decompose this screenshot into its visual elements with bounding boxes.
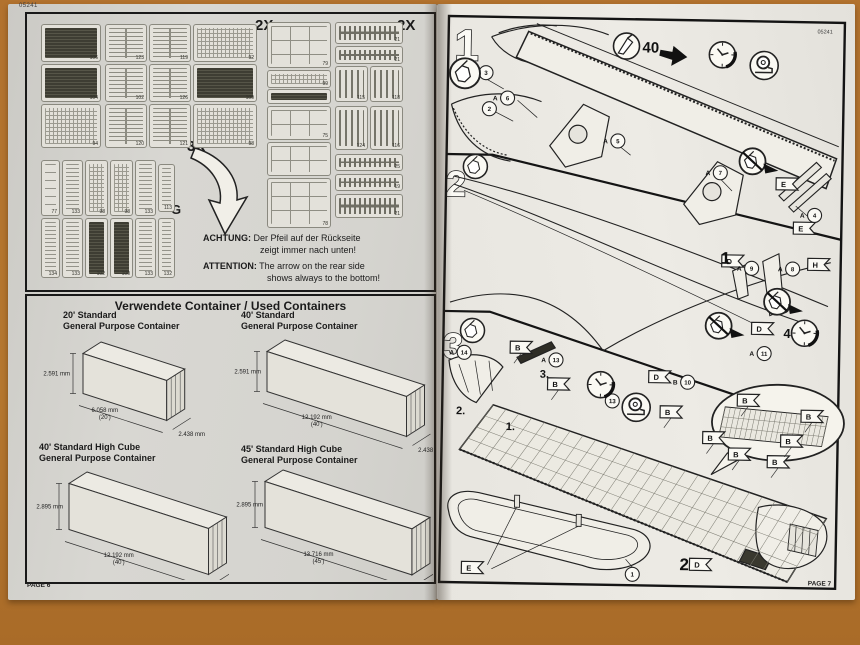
sprue-panel-pattern xyxy=(162,168,171,208)
sprue-panel: 75 xyxy=(267,106,331,140)
part-callout: A13 xyxy=(541,353,563,367)
svg-text:A: A xyxy=(493,95,498,102)
svg-text:B: B xyxy=(733,450,739,459)
sprue-panel-pattern xyxy=(153,68,187,98)
attention-label: ATTENTION: xyxy=(203,261,257,271)
sprue-panel: 126 xyxy=(149,64,191,102)
sprue-panel-pattern xyxy=(45,28,97,58)
container-name-line1: 40' Standard xyxy=(241,310,358,321)
svg-text:A: A xyxy=(800,213,805,220)
part-number: 98 xyxy=(99,210,105,215)
assembly-number-label: 1 xyxy=(721,249,731,268)
svg-text:B: B xyxy=(742,396,748,405)
sprue-panel: 118 xyxy=(370,66,403,102)
sprue-letter-flag: B xyxy=(547,378,569,400)
direction-arrow xyxy=(659,46,687,66)
assembly-steps-drawing: 05241 PAGE 7 1 2 3 40 xyxy=(437,4,855,600)
part-number: 109 xyxy=(246,96,254,101)
sprue-panel-pattern xyxy=(271,26,327,64)
sprue-panel-pattern xyxy=(197,28,253,58)
height-dim-label: 2.591 mm xyxy=(234,370,261,376)
length-dim-label: 13.716 mm xyxy=(303,552,333,558)
sprue-panel-pattern xyxy=(139,164,152,212)
sprue-panel-pattern xyxy=(45,164,56,212)
down-arrow-shape xyxy=(191,148,247,234)
container-diagram-40std: 2.591 mm12.192 mm(40')2.438 mm xyxy=(229,328,433,458)
no-glue-icon xyxy=(764,289,803,316)
svg-text:B: B xyxy=(707,434,713,443)
sprue-panel: 133 xyxy=(135,160,156,216)
sprue-panel-pattern xyxy=(197,68,253,98)
svg-text:B: B xyxy=(552,380,558,389)
svg-text:A: A xyxy=(706,170,711,177)
sprue-panel: 133 xyxy=(62,160,83,216)
sprue-panel: 119 xyxy=(149,24,191,62)
sprue-panel: 99 xyxy=(267,70,331,88)
sprue-panel-pattern xyxy=(45,222,56,274)
sprue-panel: 98 xyxy=(110,160,133,216)
container-name-line1: 20' Standard xyxy=(63,310,180,321)
sprue-panel: 79 xyxy=(267,22,331,68)
sprue-panel-pattern xyxy=(66,222,79,274)
width-dim-line xyxy=(173,418,191,430)
sprue-panel-pattern xyxy=(271,93,327,100)
sprue-panel-pattern xyxy=(109,68,143,98)
svg-text:B: B xyxy=(665,408,671,417)
sprue-letter-flag: B xyxy=(702,431,724,453)
sprue-panel-pattern xyxy=(66,164,79,212)
sprue-panel: 133 xyxy=(62,218,83,278)
sprue-panel: 25 xyxy=(335,154,403,171)
sprue-panel-pattern xyxy=(114,222,129,274)
svg-text:E: E xyxy=(781,180,786,189)
length-feet-label: (40') xyxy=(311,422,323,428)
stand-peg xyxy=(514,495,519,507)
flag-leader-line xyxy=(771,468,778,478)
sprue-panel-pattern xyxy=(339,70,364,98)
achtung-text: Der Pfeil auf der Rückseite xyxy=(254,233,361,243)
lower-bow-serration xyxy=(453,108,508,155)
circled-number-callout: 2 xyxy=(482,102,496,116)
hull-bottom-curve xyxy=(452,184,816,326)
sprue-panel-pattern xyxy=(153,28,187,58)
part-callout: A5 xyxy=(603,134,625,148)
sprue-panel-pattern xyxy=(153,108,187,144)
clock-icon xyxy=(587,371,613,397)
sprue-panel: 100 xyxy=(110,218,133,278)
part-number: 126 xyxy=(180,96,188,101)
part-number: 79 xyxy=(322,62,328,67)
flag-leader-line xyxy=(551,390,558,400)
height-dim-label: 2.895 mm xyxy=(36,505,63,511)
sprue-panel: 104 xyxy=(41,64,101,102)
svg-text:A: A xyxy=(737,266,742,273)
length-feet-label: (40') xyxy=(113,560,125,566)
stand-peg xyxy=(576,514,581,526)
right-page: 05241 PAGE 7 1 2 3 40 xyxy=(437,4,855,600)
knife-icon xyxy=(613,33,639,59)
svg-text:B: B xyxy=(673,379,678,386)
step2-hull-bottom-artwork xyxy=(449,156,832,355)
part-number: 98 xyxy=(248,142,254,147)
bulkhead-hole xyxy=(703,182,721,200)
part-callout: A6 xyxy=(493,91,515,105)
container-diagram-20std: 2.591 mm6.058 mm(20')2.438 mm xyxy=(31,328,227,440)
part-number: 133 xyxy=(72,210,80,215)
sprue-panel: 102 xyxy=(105,64,147,102)
part-number: 100 xyxy=(122,272,130,277)
svg-text:A: A xyxy=(449,350,454,357)
sprue-panel-pattern xyxy=(339,198,399,214)
achtung-text-2: zeigt immer nach unten! xyxy=(260,244,431,256)
sprue-panel: 121 xyxy=(149,104,191,148)
height-dim-label: 2.895 mm xyxy=(236,503,263,509)
attention-note: ACHTUNG: Der Pfeil auf der Rückseite zei… xyxy=(203,232,431,284)
left-page: 05241 2X 2X 3X E F G ACHTUNG: Der Pfeil … xyxy=(8,4,437,600)
sprue-panel-pattern xyxy=(271,146,327,172)
part-number: 75 xyxy=(322,134,328,139)
sprue-panel-pattern xyxy=(89,164,104,212)
sprue-panel: 133 xyxy=(135,218,156,278)
length-feet-label: (45') xyxy=(313,559,325,565)
part-number: 21 xyxy=(394,212,400,217)
assembly-number-label: 2 xyxy=(679,555,689,574)
sprue-panel: 98 xyxy=(193,104,257,148)
attention-text-2: shows always to the bottom! xyxy=(267,272,431,284)
sprue-panel-pattern xyxy=(339,158,399,167)
big-down-arrow xyxy=(187,142,257,244)
substep-label: 2. xyxy=(456,405,465,417)
svg-text:13: 13 xyxy=(553,358,560,364)
sprue-panel: 98 xyxy=(85,160,108,216)
clock-icon xyxy=(791,320,817,346)
part-number: 99 xyxy=(322,82,328,87)
bulkhead-hole xyxy=(569,125,587,143)
length-dim-label: 12.192 mm xyxy=(302,415,332,421)
sprue-panel-pattern xyxy=(271,110,327,136)
part-number: 102 xyxy=(136,96,144,101)
sprue-panel: 77 xyxy=(41,160,60,216)
attention-text: The arrow on the rear side xyxy=(259,261,365,271)
sprue-letter-flag: D xyxy=(689,558,711,570)
width-dim-label: 2.438 mm xyxy=(178,432,205,438)
svg-text:A: A xyxy=(778,266,783,273)
sprue-letter-flag: B xyxy=(660,406,682,428)
sprue-panel: 78 xyxy=(267,178,331,228)
sprue-panel-pattern xyxy=(271,74,327,84)
sprue-panel: 132 xyxy=(158,218,175,278)
container-diagram-45hc: 2.895 mm13.716 mm(45')2.438 mm xyxy=(231,462,433,580)
bow-outline xyxy=(492,24,609,39)
svg-text:13: 13 xyxy=(609,398,617,405)
part-number: 19 xyxy=(394,185,400,190)
svg-text:B: B xyxy=(772,458,778,467)
sprue-panel: 134 xyxy=(41,218,60,278)
part-number: 118 xyxy=(392,96,400,101)
part-number: 104 xyxy=(90,96,98,101)
part-callout: B10 xyxy=(673,375,695,389)
sprue-panel-pattern xyxy=(139,222,152,274)
sprue-panel-pattern xyxy=(89,222,104,274)
sprue-panel: 102 xyxy=(85,218,108,278)
sprue-letter-flag: B xyxy=(728,448,750,470)
sprue-panel-pattern xyxy=(374,110,399,146)
sprue-panel-pattern xyxy=(339,50,399,60)
tape-dispenser-icon xyxy=(750,51,778,79)
page-number-right: PAGE 7 xyxy=(808,580,832,587)
tape-dispenser-icon xyxy=(622,393,650,421)
kit-number: 05241 xyxy=(19,3,38,9)
sprue-panel xyxy=(267,142,331,176)
part-number: 92 xyxy=(248,56,254,61)
sprue-letter-flag: B xyxy=(767,456,789,478)
step3-deck-artwork xyxy=(445,340,845,583)
assembly-number-label: 4 xyxy=(783,326,791,341)
part-callout: A4 xyxy=(800,208,822,222)
achtung-label: ACHTUNG: xyxy=(203,233,251,243)
substep-label: 3. xyxy=(540,369,549,381)
sprue-panel: 21 xyxy=(335,46,403,64)
kit-number: 05241 xyxy=(817,29,832,35)
sprue-panel: 19 xyxy=(335,174,403,191)
part-number: 113 xyxy=(164,206,172,211)
used-containers-box: Verwendete Container / Used Containers 2… xyxy=(25,294,436,584)
sprue-letter-flag: E xyxy=(793,222,815,234)
svg-text:14: 14 xyxy=(461,351,468,357)
sprue-panel-pattern xyxy=(45,68,97,98)
length-dim-label: 12.192 mm xyxy=(104,553,134,559)
glue-bottle-icon xyxy=(463,154,487,178)
sprue-panel-pattern xyxy=(271,182,327,224)
sprue-panel-pattern xyxy=(197,108,253,144)
clock-icon xyxy=(709,42,735,68)
svg-text:H: H xyxy=(812,261,818,270)
width-dim-line xyxy=(413,434,431,446)
part-number: 25 xyxy=(394,165,400,170)
part-number: 21 xyxy=(394,58,400,63)
part-number: 98 xyxy=(124,210,130,215)
sprue-panel: 123 xyxy=(105,24,147,62)
container-diagram-40hc: 2.895 mm12.192 mm(40')2.438 mm xyxy=(31,462,229,580)
part-number: 102 xyxy=(97,272,105,277)
sprue-letter-flag: E xyxy=(461,561,483,573)
sprue-overview-box: 2X 2X 3X E F G ACHTUNG: Der Pfeil auf de… xyxy=(25,12,436,292)
sprue-panel-pattern xyxy=(162,222,171,274)
part-number: 78 xyxy=(322,222,328,227)
page-number-left: PAGE 6 xyxy=(27,582,50,589)
sprue-panel-pattern xyxy=(339,178,399,187)
quantity-40-label: 40 xyxy=(642,39,659,56)
lower-bow-outline xyxy=(450,104,511,161)
sprue-panel-pattern xyxy=(109,108,143,144)
part-number: 121 xyxy=(180,142,188,147)
sprue-letter-flag: H xyxy=(808,258,830,270)
sprue-panel: 113 xyxy=(158,164,175,212)
sprue-panel: 21 xyxy=(335,22,403,44)
part-number: 120 xyxy=(136,142,144,147)
width-dim-label: 2.438 mm xyxy=(418,448,433,454)
flag-leader-line xyxy=(706,444,713,454)
part-number: 106 xyxy=(90,56,98,61)
svg-text:B: B xyxy=(785,437,791,446)
bow-deck-part xyxy=(448,354,503,403)
part-number: 124 xyxy=(357,144,365,149)
svg-text:D: D xyxy=(694,561,700,570)
svg-text:D: D xyxy=(756,325,762,334)
svg-text:E: E xyxy=(466,564,471,573)
sprue-panel: 116 xyxy=(370,106,403,150)
sprue-panel: 115 xyxy=(335,66,368,102)
notice-line-de: ACHTUNG: Der Pfeil auf der Rückseite xyxy=(203,232,431,244)
svg-text:E: E xyxy=(798,224,803,233)
substep-label: 1. xyxy=(506,421,515,433)
sprue-panel: 21 xyxy=(335,194,403,218)
circled-number-callout: 1 xyxy=(625,567,639,581)
width-dim-line xyxy=(418,572,433,580)
svg-text:A: A xyxy=(541,357,546,364)
part-number: 94 xyxy=(92,142,98,147)
part-number: 123 xyxy=(136,56,144,61)
part-number: 133 xyxy=(145,272,153,277)
part-number: 133 xyxy=(145,210,153,215)
svg-text:A: A xyxy=(749,351,754,358)
sprue-panel: 92 xyxy=(193,24,257,62)
length-dim-label: 6.058 mm xyxy=(92,408,119,414)
sprue-panel-pattern xyxy=(374,70,399,98)
svg-text:11: 11 xyxy=(761,352,768,358)
photo-of-model-kit-instruction-manual: 05241 2X 2X 3X E F G ACHTUNG: Der Pfeil … xyxy=(0,0,860,645)
length-feet-label: (20') xyxy=(99,415,111,421)
sprue-panel xyxy=(267,89,331,104)
part-number: 116 xyxy=(392,144,400,149)
sprue-panel: 109 xyxy=(193,64,257,102)
svg-text:10: 10 xyxy=(684,380,691,386)
glue-bottle-icon xyxy=(450,58,481,89)
part-number: 132 xyxy=(164,272,172,277)
svg-text:A: A xyxy=(603,138,608,145)
part-number: 21 xyxy=(394,38,400,43)
notice-line-en: ATTENTION: The arrow on the rear side xyxy=(203,260,431,272)
width-dim-line xyxy=(215,572,230,580)
part-number: 115 xyxy=(357,96,365,101)
sprue-panel-pattern xyxy=(114,164,129,212)
sprue-panel-pattern xyxy=(109,28,143,58)
sprue-panel: 124 xyxy=(335,106,368,150)
part-number: 119 xyxy=(180,56,188,61)
sprue-panel: 106 xyxy=(41,24,101,62)
svg-text:B: B xyxy=(806,412,812,421)
part-number: 77 xyxy=(51,210,57,215)
svg-text:D: D xyxy=(653,373,659,382)
container-name-40hc: 40' Standard High Cube General Purpose C… xyxy=(39,442,156,463)
sprue-letter-flag: D xyxy=(649,371,671,383)
svg-text:B: B xyxy=(515,343,521,352)
sprue-panel-pattern xyxy=(339,26,399,40)
sprue-panel-pattern xyxy=(45,108,97,144)
sprue-panel-pattern xyxy=(339,110,364,146)
circled-number-callout: 3 xyxy=(479,66,493,80)
flag-leader-line xyxy=(664,418,671,428)
sprue-letter-flag: D xyxy=(751,322,773,334)
part-callout: A11 xyxy=(749,346,771,360)
height-dim-label: 2.591 mm xyxy=(43,372,70,378)
part-number: 134 xyxy=(49,272,57,277)
sprue-panel: 94 xyxy=(41,104,101,148)
container-name-line1: 40' Standard High Cube xyxy=(39,442,156,453)
glue-bottle-icon xyxy=(460,318,484,342)
part-number: 133 xyxy=(72,272,80,277)
sprue-panel: 120 xyxy=(105,104,147,148)
